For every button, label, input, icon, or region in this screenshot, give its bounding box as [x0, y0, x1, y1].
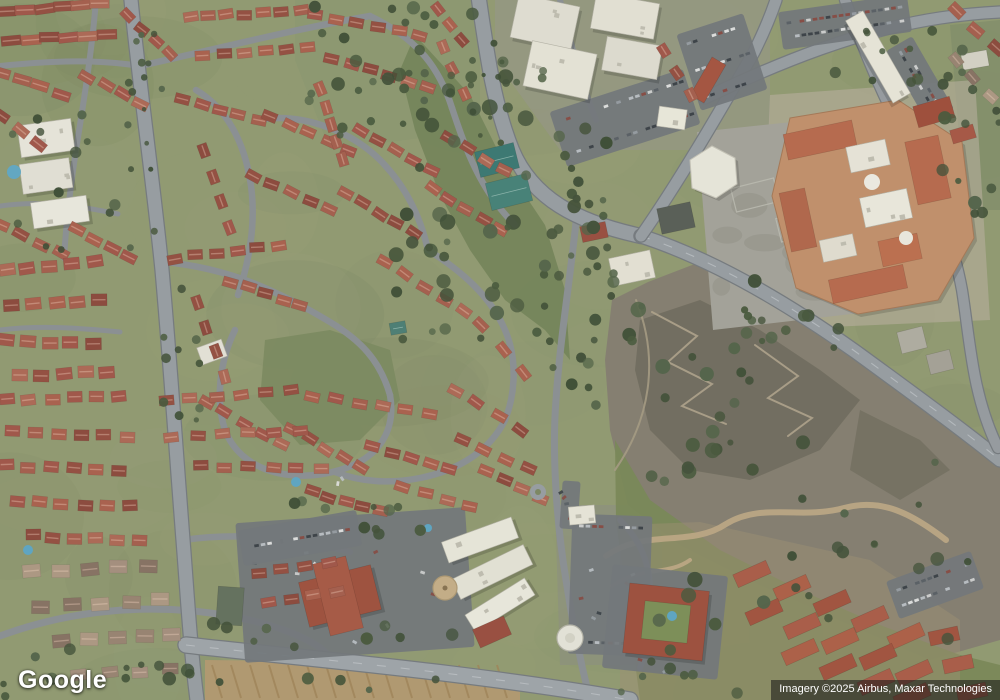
google-logo[interactable]: Google	[18, 666, 107, 695]
imagery-attribution: Imagery ©2025 Airbus, Maxar Technologies	[771, 680, 1000, 700]
satellite-map-canvas[interactable]: Google Imagery ©2025 Airbus, Maxar Techn…	[0, 0, 1000, 700]
photo-tint	[0, 0, 1000, 700]
satellite-imagery	[0, 0, 1000, 700]
